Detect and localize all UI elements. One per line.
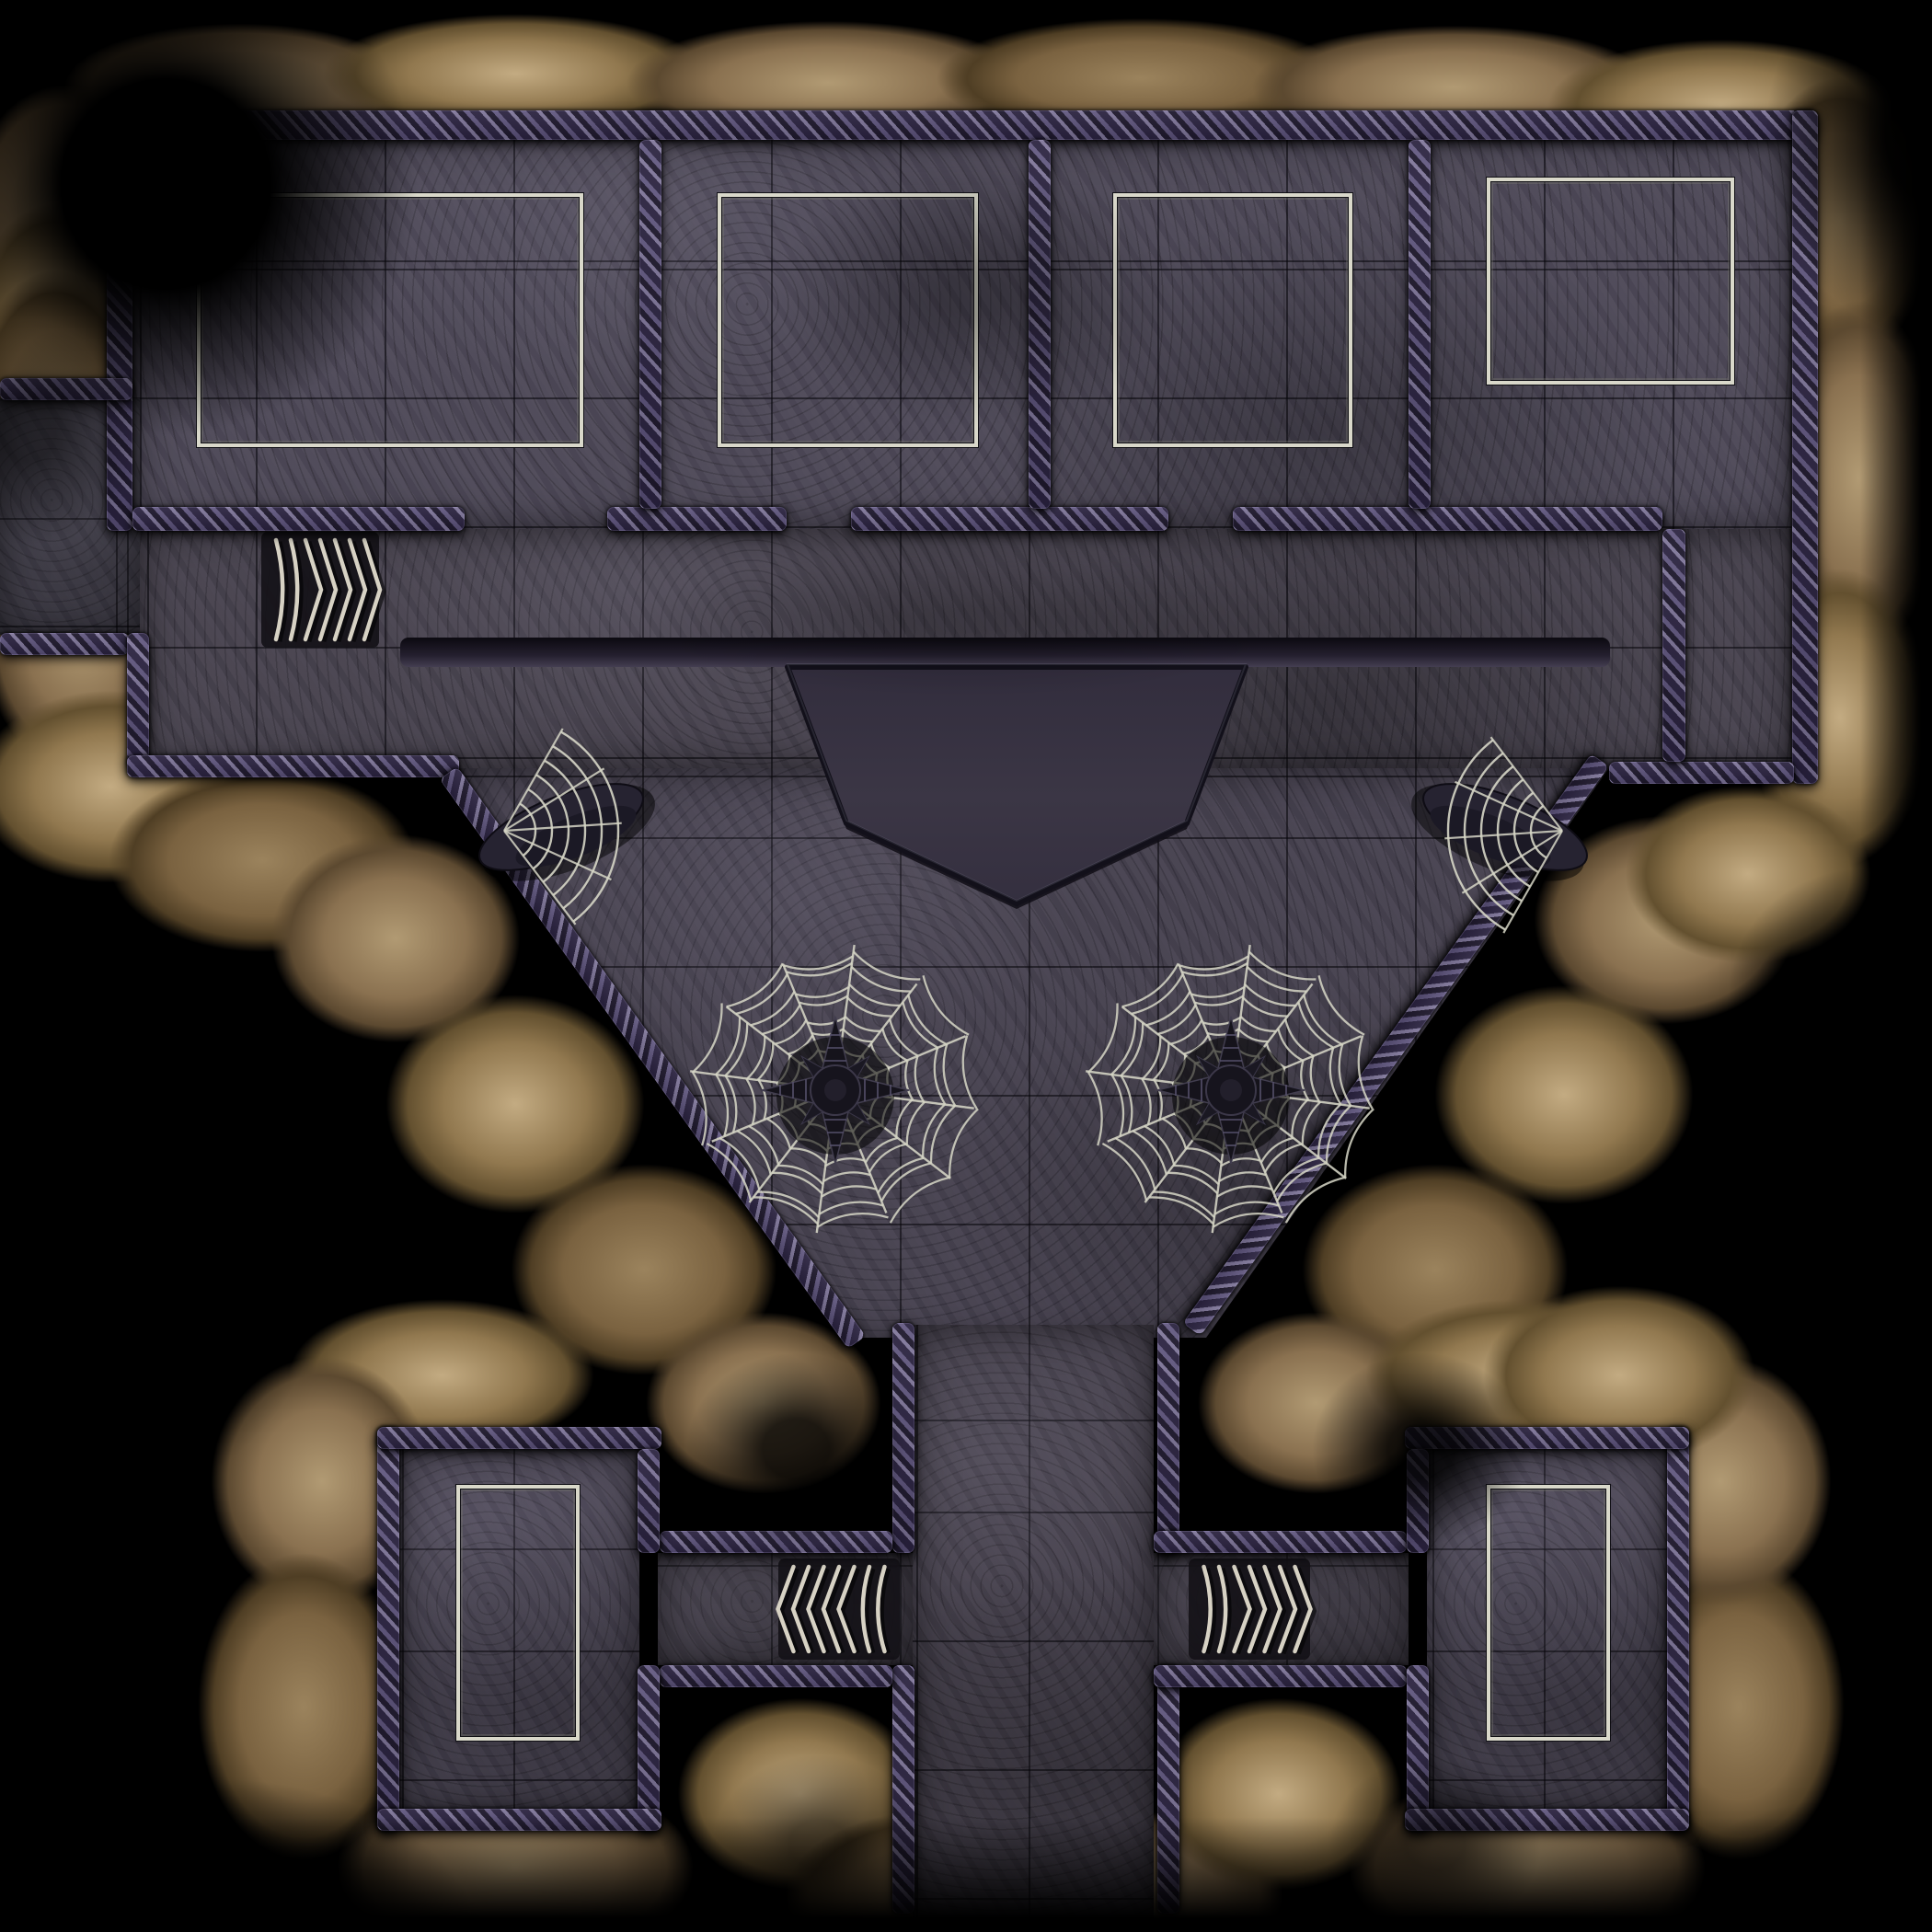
shadow-south-fade [0, 1817, 1932, 1932]
shadow-chamber-step [515, 515, 1417, 727]
shadow-west-void [0, 791, 432, 1619]
shadow-west-nook [0, 276, 184, 589]
shadow-hall-center [699, 110, 1251, 478]
shadow-corner-northwest [0, 0, 515, 534]
shadow-east-fade [1860, 0, 1932, 1932]
darkness-layer [0, 0, 1932, 1932]
dungeon-map [0, 0, 1932, 1932]
shadow-se-throat [1270, 1316, 1573, 1582]
shadow-sw-throat [644, 1316, 948, 1582]
